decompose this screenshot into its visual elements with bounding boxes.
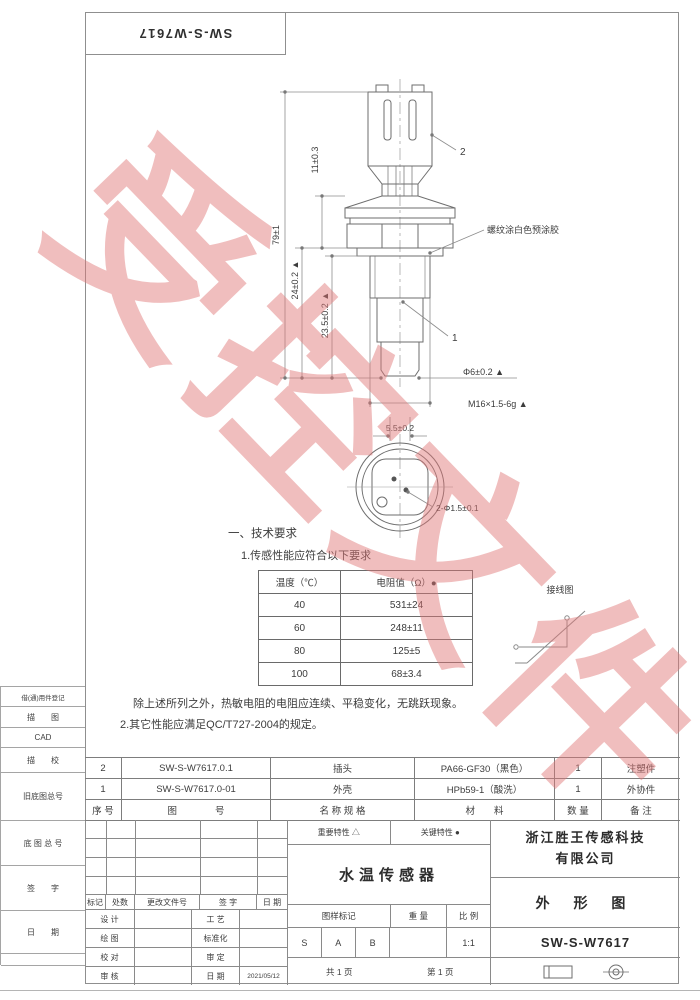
margin-registry-column: 借(通)用件登记 描 图 CAD 描 校 旧底图总号 底 图 总 号 签 字 日… xyxy=(0,686,85,965)
product-name: 水温传感器 xyxy=(339,864,439,885)
signature-table: 设 计 工 艺 绘 图 标准化 校 对 审 定 xyxy=(85,910,287,985)
company-section: 浙江胜王传感科技 有限公司 外 形 图 SW-S-W7617 xyxy=(490,820,680,985)
thread-note-label: 螺纹涂白色预涂胶 xyxy=(487,224,559,235)
resistance-table: 温度（℃） 电阻值（Ω）● 40 531±24 60 248±11 80 125… xyxy=(258,570,473,686)
rev-date-label: 日 期 xyxy=(257,895,287,909)
bom-qty: 1 xyxy=(555,779,602,800)
bom-row: 2 SW-S-W7617.0.1 插头 PA66-GF30（黑色） 1 注塑件 xyxy=(85,758,680,779)
sig-process-value xyxy=(240,910,287,928)
rev-count-label: 处数 xyxy=(106,895,135,909)
temp-value: 80 xyxy=(259,640,341,663)
margin-empty-cell xyxy=(1,954,85,966)
bom-remark: 注塑件 xyxy=(602,758,680,779)
bottom-view xyxy=(347,443,453,531)
dim-thread-length: 23.5±0.2 ▲ xyxy=(320,292,330,338)
sig-audit-value xyxy=(135,967,192,985)
sig-process-label: 工 艺 xyxy=(192,910,240,928)
bom-material: PA66-GF30（黑色） xyxy=(415,758,555,779)
bom-name: 外壳 xyxy=(271,779,415,800)
dim-tip-width: 5.5±0.2 xyxy=(386,423,415,433)
sig-standard-value xyxy=(240,929,287,947)
important-characteristic-label: 重要特性 △ xyxy=(288,820,391,844)
sig-design-value xyxy=(135,910,192,928)
margin-tracing-check-label: 描 校 xyxy=(1,748,85,773)
mark-s: S xyxy=(288,928,322,957)
view-type-label: 外 形 图 xyxy=(491,878,680,928)
bom-name: 插头 xyxy=(271,758,415,779)
mark-a: A xyxy=(322,928,356,957)
sheet-total: 共 1 页 xyxy=(288,958,391,985)
product-section: 重要特性 △ 关键特性 ● 水温传感器 图样标记 重 量 比 例 S A B 1… xyxy=(287,820,490,985)
resistance-value: 531±24 xyxy=(341,594,473,617)
weight-label: 重 量 xyxy=(391,905,448,927)
dimension-arrows xyxy=(283,90,431,437)
mark-b: B xyxy=(356,928,391,957)
sig-check-value xyxy=(135,948,192,966)
dimension-lines xyxy=(280,92,517,441)
sig-draw-label: 绘 图 xyxy=(85,929,135,947)
wiring-diagram: 接线图 xyxy=(505,575,615,670)
dim-probe-diameter: Φ6±0.2 ▲ xyxy=(463,367,504,377)
callout-body: 1 xyxy=(452,333,458,344)
rev-mark-label: 标记 xyxy=(85,895,106,909)
bom-material: HPb59-1（酸洗） xyxy=(415,779,555,800)
resistance-value: 125±5 xyxy=(341,640,473,663)
scale-label: 比 例 xyxy=(447,905,490,927)
revision-signature-section: 标记 处数 更改文件号 签 字 日 期 设 计 工 艺 绘 图 标准化 xyxy=(85,820,287,985)
temp-value: 40 xyxy=(259,594,341,617)
scale-value: 1:1 xyxy=(447,928,490,957)
revision-header-row: 标记 处数 更改文件号 签 字 日 期 xyxy=(85,895,287,910)
bom-header-remark: 备 注 xyxy=(602,800,680,821)
drawing-number: SW-S-W7617 xyxy=(491,928,680,958)
table-row: 80 125±5 xyxy=(259,640,473,663)
drawing-mark-label: 图样标记 xyxy=(288,905,391,927)
bom-header-name: 名 称 规 格 xyxy=(271,800,415,821)
sig-approve-label: 审 定 xyxy=(192,948,240,966)
doc-number-rotated: SW-S-W7617 xyxy=(138,26,232,41)
bom-header-material: 材 料 xyxy=(415,800,555,821)
bom-qty: 1 xyxy=(555,758,602,779)
sheet-bottom-rule xyxy=(0,990,700,991)
tech-requirements-title: 一、技术要求 xyxy=(228,525,297,541)
dim-terminal-holes: 2-Φ1.5±0.1 xyxy=(436,503,479,513)
dim-thread-spec: M16×1.5-6g ▲ xyxy=(468,399,528,409)
resistance-value: 68±3.4 xyxy=(341,663,473,686)
sig-draw-value xyxy=(135,929,192,947)
resistance-table-temp-header: 温度（℃） xyxy=(259,571,341,594)
weight-value xyxy=(390,928,447,957)
temp-value: 100 xyxy=(259,663,341,686)
rev-sign-label: 签 字 xyxy=(200,895,257,909)
dim-overall-length: 79±1 xyxy=(271,225,281,245)
sheet-page: 第 1 页 xyxy=(391,958,491,985)
margin-old-master-no-label: 旧底图总号 xyxy=(1,773,85,821)
bom-header-qty: 数 量 xyxy=(555,800,602,821)
company-name-line1: 浙江胜王传感科技 xyxy=(525,828,645,849)
margin-borrowed-parts-label: 借(通)用件登记 xyxy=(1,687,85,707)
thermistor-symbol xyxy=(514,611,585,663)
resistance-table-res-header: 电阻值（Ω）● xyxy=(341,571,473,594)
bom-row: 1 SW-S-W7617.0-01 外壳 HPb59-1（酸洗） 1 外协件 xyxy=(85,779,680,800)
sig-approve-value xyxy=(240,948,287,966)
first-angle-view-icon xyxy=(541,963,575,981)
table-row: 100 68±3.4 xyxy=(259,663,473,686)
bom-header-code: 图 号 xyxy=(122,800,271,821)
tech-requirements-item1: 1.传感性能应符合以下要求 xyxy=(241,547,371,563)
sensor-outline-drawing: 79±1 11±0.3 24±0.2 ▲ 23.5±0.2 ▲ Φ6±0.2 ▲… xyxy=(85,55,680,545)
table-row: 60 248±11 xyxy=(259,617,473,640)
tech-requirements-item2: 2.其它性能应满足QC/T727-2004的规定。 xyxy=(120,716,323,732)
dim-body-length: 24±0.2 ▲ xyxy=(290,261,300,300)
resistance-value: 248±11 xyxy=(341,617,473,640)
bom-code: SW-S-W7617.0.1 xyxy=(122,758,271,779)
dimension-labels: 79±1 11±0.3 24±0.2 ▲ 23.5±0.2 ▲ Φ6±0.2 ▲… xyxy=(271,147,528,513)
bom-header-row: 序 号 图 号 名 称 规 格 材 料 数 量 备 注 xyxy=(85,800,680,821)
wiring-diagram-label: 接线图 xyxy=(546,584,573,595)
revision-table xyxy=(85,820,287,895)
table-row: 40 531±24 xyxy=(259,594,473,617)
margin-signature-label: 签 字 xyxy=(1,866,85,911)
projection-circle-icon xyxy=(601,963,631,981)
margin-cad-label: CAD xyxy=(1,728,85,748)
sig-audit-label: 审 核 xyxy=(85,967,135,985)
bom-code: SW-S-W7617.0-01 xyxy=(122,779,271,800)
doc-number-box: SW-S-W7617 xyxy=(85,12,286,55)
bom-remark: 外协件 xyxy=(602,779,680,800)
margin-master-no-label: 底 图 总 号 xyxy=(1,821,85,866)
company-name-line2: 有限公司 xyxy=(555,849,615,870)
margin-tracing-label: 描 图 xyxy=(1,707,85,728)
projection-symbols xyxy=(491,958,680,985)
sig-standard-label: 标准化 xyxy=(192,929,240,947)
rev-doc-label: 更改文件号 xyxy=(135,895,200,909)
title-block: 标记 处数 更改文件号 签 字 日 期 设 计 工 艺 绘 图 标准化 xyxy=(85,820,680,985)
dim-connector-height: 11±0.3 xyxy=(310,147,320,174)
bom-no: 1 xyxy=(85,779,122,800)
sig-date-label: 日 期 xyxy=(192,967,240,985)
drawing-sheet: SW-S-W7617 xyxy=(0,0,700,1000)
key-characteristic-label: 关键特性 ● xyxy=(391,820,491,844)
bom-no: 2 xyxy=(85,758,122,779)
bom-header-no: 序 号 xyxy=(85,800,122,821)
sig-design-label: 设 计 xyxy=(85,910,135,928)
sig-check-label: 校 对 xyxy=(85,948,135,966)
callout-connector: 2 xyxy=(460,147,466,158)
temp-value: 60 xyxy=(259,617,341,640)
tech-requirements-note: 除上述所列之外，热敏电阻的电阻应连续、平稳变化，无跳跃现象。 xyxy=(133,695,673,711)
sig-date-value: 2021/05/12 xyxy=(240,967,287,985)
margin-date-label: 日 期 xyxy=(1,911,85,954)
bom-table: 2 SW-S-W7617.0.1 插头 PA66-GF30（黑色） 1 注塑件 … xyxy=(85,757,680,821)
